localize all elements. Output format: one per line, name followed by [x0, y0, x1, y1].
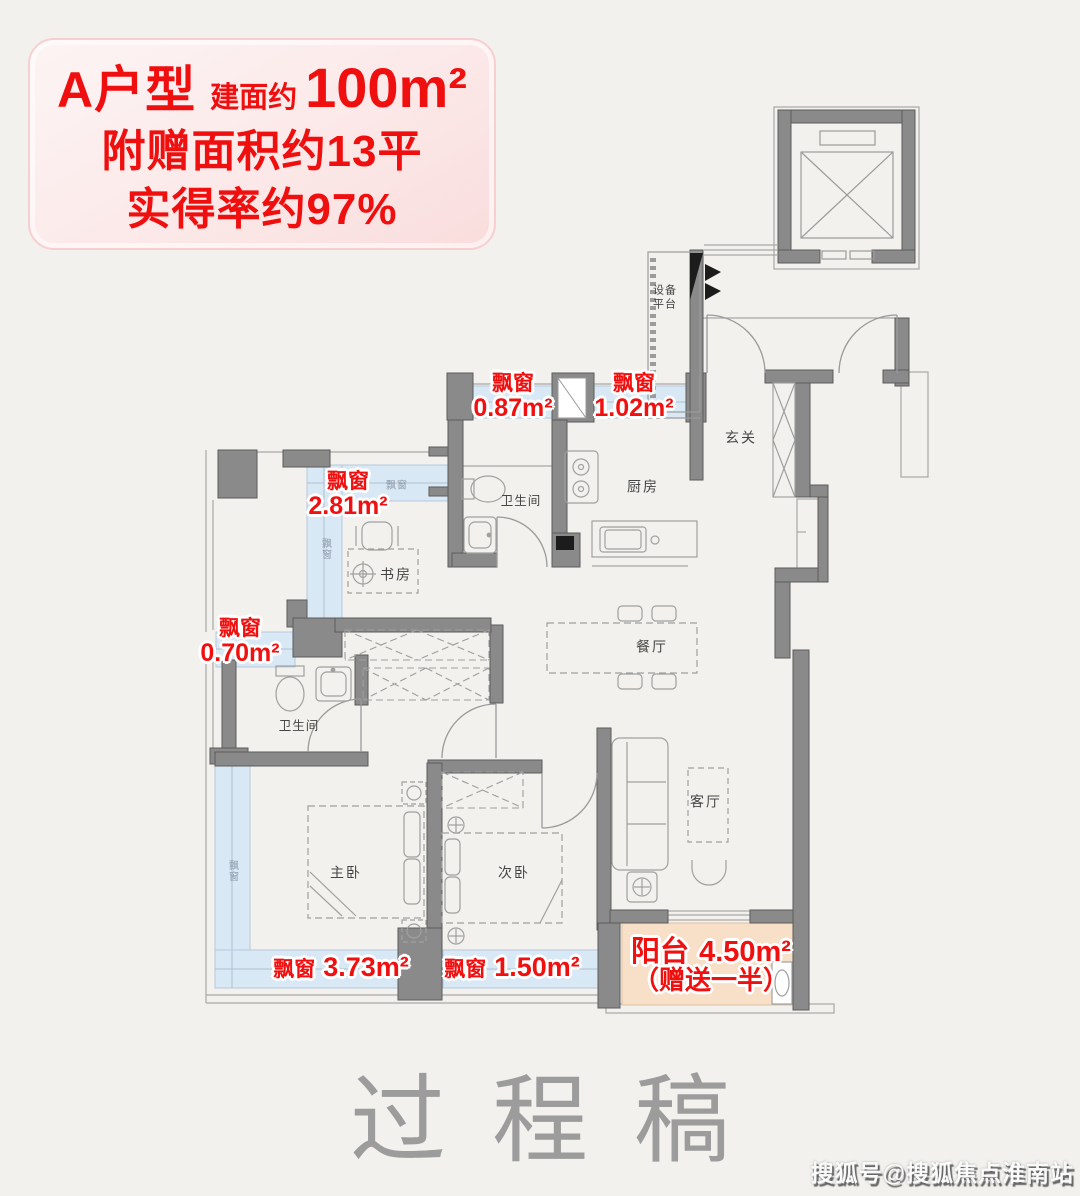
headline-card: A户型 建面约 100m² 附赠面积约13平 实得率约97% — [28, 38, 496, 250]
furniture-kitchen — [565, 451, 697, 557]
balcony-label: 阳台4.50m² （赠送一半） — [631, 937, 791, 995]
furniture-bath-upper — [462, 476, 505, 553]
bonus-line: 附赠面积约13平 — [102, 124, 423, 180]
label-dining: 餐厅 — [636, 638, 668, 656]
efficiency-line: 实得率约97% — [126, 182, 397, 238]
bay-label-kitchen: 飘窗 1.02m² — [594, 373, 673, 421]
area-prefix: 建面约 — [210, 74, 297, 116]
draft-watermark: 过程稿 — [304, 1043, 776, 1182]
sofa — [612, 738, 668, 870]
window-mark-study-left: 飘窗 — [318, 538, 333, 560]
label-master-bedroom: 主卧 — [330, 864, 362, 882]
headline-line1: A户型 建面约 100m² — [57, 50, 467, 122]
label-second-bedroom: 次卧 — [498, 864, 530, 882]
armchair — [692, 868, 726, 885]
bay-label-hall: 飘窗 0.70m² — [200, 618, 279, 666]
source-credit: 搜狐号@搜狐焦点淮南站 — [811, 1154, 1074, 1188]
flue-shaft — [558, 378, 586, 418]
unit-walls — [210, 250, 909, 1010]
furniture-dining — [547, 606, 697, 689]
label-living: 客厅 — [690, 793, 722, 811]
toilet — [276, 677, 304, 711]
furniture-living — [612, 738, 728, 902]
furniture-master-bedroom — [308, 782, 426, 942]
label-study: 书房 — [380, 566, 412, 584]
bay-label-study: 飘窗 2.81m² — [308, 471, 387, 519]
dining-table — [547, 623, 697, 673]
label-bathroom-lower: 卫生间 — [279, 719, 320, 735]
furniture-bath-lower — [276, 666, 351, 711]
area-value: 100m² — [305, 55, 467, 120]
label-entry: 玄关 — [725, 429, 757, 447]
label-kitchen: 厨房 — [627, 478, 659, 496]
window-mark-master: 飘窗 — [225, 860, 240, 882]
unit-name: A户型 — [57, 50, 196, 122]
bay-label-bath-upper: 飘窗 0.87m² — [473, 373, 552, 421]
label-equipment-platform: 设备 平台 — [653, 284, 677, 312]
bay-label-second: 飘窗1.50m² — [444, 953, 580, 981]
window-mark-study-top: 飘窗 — [386, 477, 408, 492]
elevator — [778, 110, 915, 263]
label-bathroom-upper: 卫生间 — [501, 494, 542, 510]
desk-chair — [362, 522, 392, 550]
entry-shaft — [773, 383, 795, 497]
bay-label-master: 飘窗3.73m² — [273, 953, 409, 981]
